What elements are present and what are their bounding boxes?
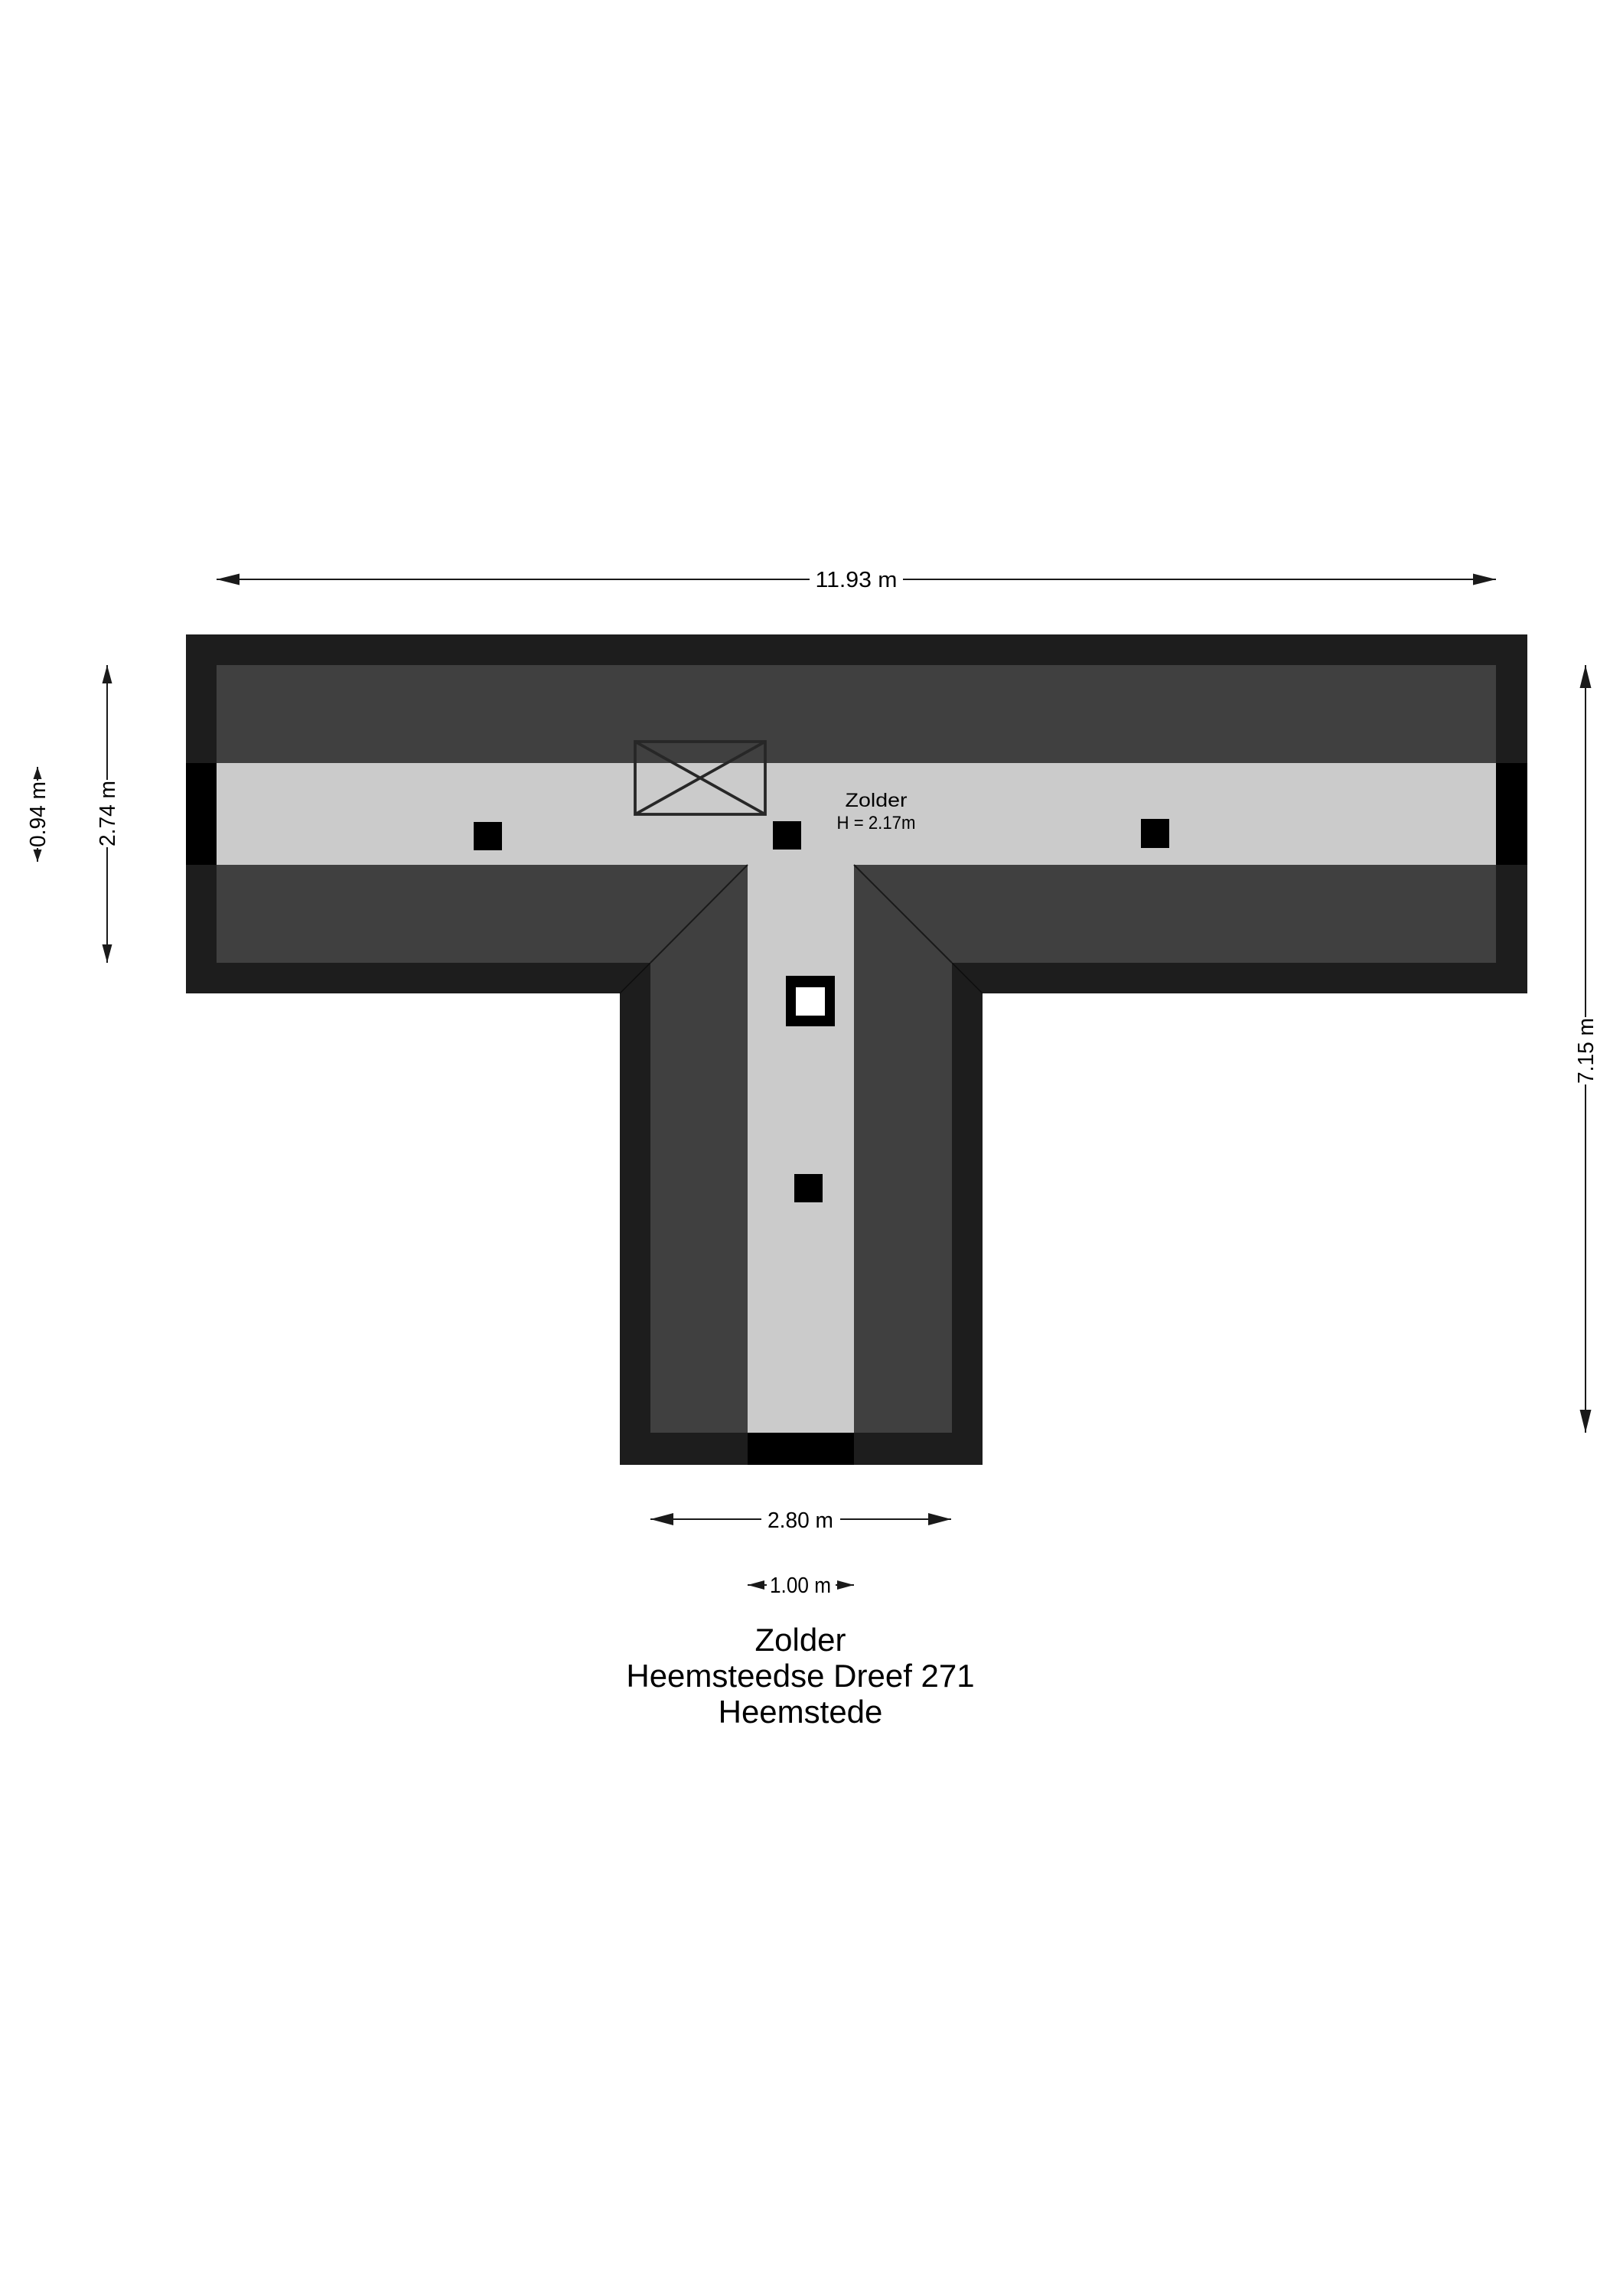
svg-text:2.80 m: 2.80 m: [768, 1508, 833, 1533]
svg-text:Zolder: Zolder: [846, 790, 908, 811]
svg-text:Zolder: Zolder: [754, 1622, 846, 1658]
svg-text:1.00 m: 1.00 m: [770, 1574, 831, 1598]
svg-text:0.94 m: 0.94 m: [26, 781, 51, 847]
svg-text:Heemstede: Heemstede: [719, 1694, 883, 1730]
svg-text:11.93 m: 11.93 m: [816, 568, 898, 592]
svg-text:Heemsteedse Dreef 271: Heemsteedse Dreef 271: [626, 1658, 974, 1694]
svg-text:H = 2.17m: H = 2.17m: [837, 813, 916, 833]
svg-text:2.74 m: 2.74 m: [96, 781, 120, 846]
svg-text:7.15 m: 7.15 m: [1574, 1018, 1599, 1084]
